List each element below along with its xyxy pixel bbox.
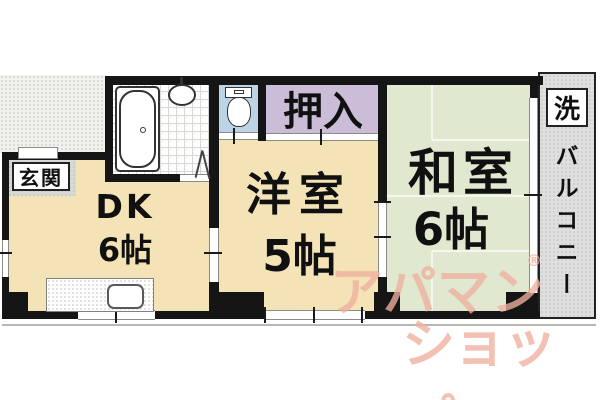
exterior-area bbox=[0, 75, 107, 153]
floor-plan: 玄関 DK 6帖 洋室 5帖 和室 6帖 押入 洗 バルコニー アパマン ® シ… bbox=[0, 0, 600, 400]
door-tick bbox=[374, 236, 391, 238]
wall-corner-block bbox=[2, 292, 28, 319]
wall-japanese-right-top bbox=[530, 76, 538, 98]
washbasin bbox=[168, 84, 196, 106]
door-tick bbox=[204, 252, 222, 254]
watermark-line2: ショップ bbox=[402, 302, 600, 400]
entrance-label-box: 玄関 bbox=[12, 162, 70, 191]
bathtub-inner bbox=[119, 90, 156, 168]
entrance-label: 玄関 bbox=[19, 162, 63, 191]
watermark-reg-mark: ® bbox=[526, 251, 542, 270]
window-tick bbox=[524, 194, 542, 196]
tatami-line bbox=[431, 84, 433, 140]
laundry-label: 洗 bbox=[554, 89, 580, 126]
entrance-door bbox=[18, 147, 58, 159]
wall-corner-block bbox=[211, 292, 264, 319]
dk-size-label: 6帖 bbox=[75, 230, 175, 266]
toilet-bowl bbox=[227, 97, 251, 127]
wall-bath-left bbox=[105, 76, 113, 182]
door-tick bbox=[374, 201, 391, 203]
wall-toilet-closet-divider bbox=[258, 76, 266, 141]
western-room-label: 洋室 bbox=[238, 164, 360, 216]
wall-center-vertical-upper bbox=[209, 76, 219, 228]
toilet-door-strip bbox=[219, 132, 258, 140]
laundry-box: 洗 bbox=[546, 88, 588, 127]
japanese-room-label: 和室 bbox=[402, 140, 524, 198]
window-tick bbox=[313, 307, 315, 323]
balcony-label: バルコニー bbox=[549, 134, 579, 314]
bathtub-drain bbox=[140, 127, 146, 133]
door-tick bbox=[233, 128, 235, 144]
dk-western-opening bbox=[209, 228, 219, 282]
window-tick bbox=[264, 307, 266, 323]
japanese-size-label: 6帖 bbox=[392, 200, 510, 250]
dk-left-window bbox=[2, 240, 9, 277]
dk-label: DK bbox=[80, 190, 170, 222]
toilet-tank-button bbox=[234, 90, 244, 94]
window-tick bbox=[0, 252, 12, 254]
kitchen-sink bbox=[107, 284, 144, 309]
wall-bath-bottom bbox=[105, 174, 180, 182]
washbasin-tap bbox=[180, 77, 183, 85]
closet-label: 押入 bbox=[278, 84, 368, 132]
wall-western-japanese-upper bbox=[378, 76, 387, 202]
